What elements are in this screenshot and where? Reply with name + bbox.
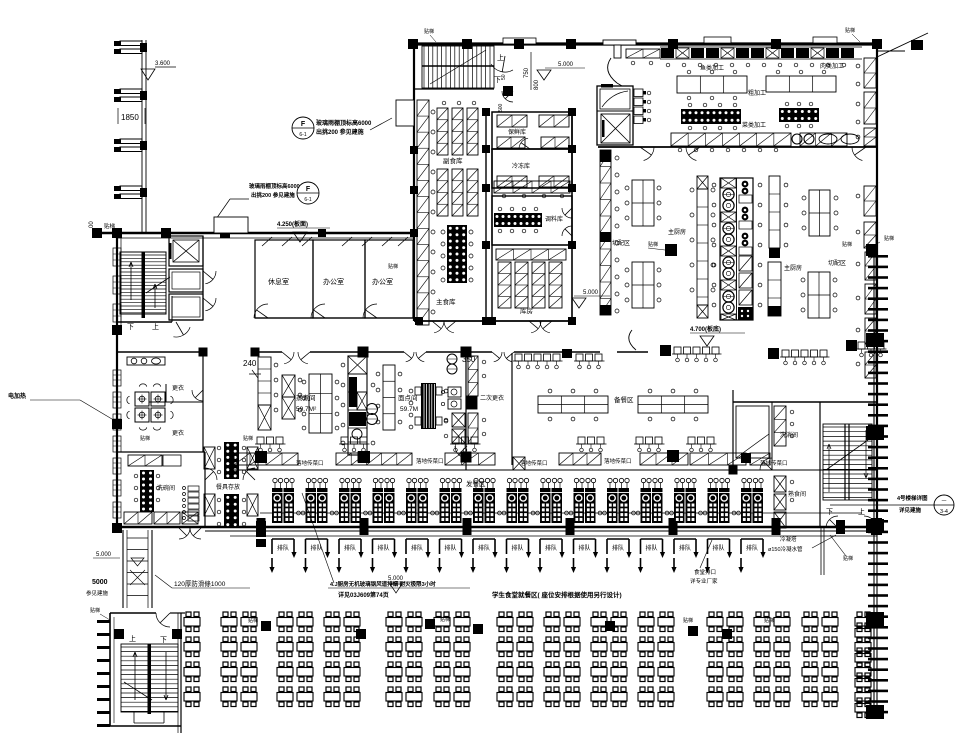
svg-text:贴梯: 贴梯	[424, 28, 434, 35]
svg-text:下: 下	[127, 323, 134, 331]
svg-text:休息室: 休息室	[268, 277, 289, 286]
svg-text:落地传菜口: 落地传菜口	[296, 459, 324, 467]
svg-text:ø150冷凝水管: ø150冷凝水管	[768, 545, 803, 553]
svg-text:主厨房: 主厨房	[668, 228, 686, 236]
svg-text:菜类加工: 菜类加工	[742, 121, 766, 129]
svg-text:59.7M: 59.7M	[400, 406, 418, 413]
svg-text:保鲜库: 保鲜库	[508, 128, 526, 136]
svg-text:主食库: 主食库	[436, 297, 456, 306]
svg-text:备餐区: 备餐区	[614, 395, 634, 404]
svg-text:排队: 排队	[679, 544, 691, 552]
svg-text:排队: 排队	[545, 544, 557, 552]
svg-text:鱼类加工: 鱼类加工	[700, 64, 724, 72]
svg-text:餐具存放: 餐具存放	[216, 483, 240, 491]
svg-text:洗消间: 洗消间	[780, 431, 798, 439]
svg-text:参见建施: 参见建施	[86, 589, 109, 597]
svg-text:排队: 排队	[411, 544, 423, 552]
svg-text:59.7M²: 59.7M²	[296, 406, 317, 413]
svg-text:排队: 排队	[511, 544, 523, 552]
svg-text:350: 350	[462, 355, 476, 364]
svg-text:排队: 排队	[478, 544, 490, 552]
svg-text:4.J厨房无机玻璃钢风道排烟 耐火极限3小时: 4.J厨房无机玻璃钢风道排烟 耐火极限3小时	[330, 580, 436, 588]
svg-text:学生食堂就餐区( 座位安排根据使用另行设计): 学生食堂就餐区( 座位安排根据使用另行设计)	[492, 590, 622, 599]
svg-text:6-1: 6-1	[304, 197, 311, 203]
svg-text:办公室: 办公室	[372, 277, 393, 286]
svg-text:贴梯: 贴梯	[648, 241, 658, 248]
svg-text:3.600: 3.600	[155, 61, 171, 67]
svg-text:下: 下	[494, 76, 501, 84]
svg-text:排队: 排队	[277, 544, 289, 552]
svg-text:落地传菜口: 落地传菜口	[604, 457, 632, 465]
svg-text:贴梯: 贴梯	[140, 435, 150, 442]
svg-text:更衣: 更衣	[172, 429, 184, 437]
svg-text:4.700(板底): 4.700(板底)	[690, 325, 721, 333]
svg-text:切配区: 切配区	[828, 260, 846, 267]
svg-text:240: 240	[243, 359, 257, 368]
svg-text:800: 800	[534, 79, 540, 90]
svg-text:贴梯: 贴梯	[104, 222, 116, 230]
svg-text:落地传菜口: 落地传菜口	[760, 459, 788, 467]
svg-text:1850: 1850	[121, 113, 139, 122]
svg-text:洗碗间: 洗碗间	[157, 484, 175, 492]
svg-text:500: 500	[498, 103, 504, 112]
svg-text:贴梯: 贴梯	[683, 617, 693, 624]
svg-text:贴梯: 贴梯	[440, 616, 450, 623]
svg-text:F: F	[306, 186, 311, 193]
svg-text:一: 一	[941, 499, 946, 505]
svg-text:750: 750	[524, 67, 530, 78]
svg-text:排队: 排队	[578, 544, 590, 552]
svg-text:食堂排口: 食堂排口	[694, 568, 716, 576]
svg-text:贴梯: 贴梯	[843, 555, 853, 562]
svg-text:库房: 库房	[520, 306, 533, 315]
svg-text:贴梯: 贴梯	[388, 263, 398, 270]
svg-text:面点间: 面点间	[398, 394, 418, 402]
svg-text:上: 上	[152, 322, 159, 331]
svg-text:出挑200 参见建施: 出挑200 参见建施	[316, 128, 364, 136]
svg-text:贴梯: 贴梯	[842, 241, 852, 248]
svg-text:5000: 5000	[92, 579, 108, 586]
svg-text:贴梯: 贴梯	[90, 607, 100, 614]
svg-text:上: 上	[858, 507, 865, 516]
svg-text:排队: 排队	[746, 544, 758, 552]
svg-text:4号楼梯详图: 4号楼梯详图	[897, 494, 928, 502]
svg-text:主厨房: 主厨房	[784, 264, 802, 272]
svg-text:粗加工: 粗加工	[748, 89, 766, 97]
svg-text:详专业厂家: 详专业厂家	[690, 577, 718, 585]
svg-text:切配区: 切配区	[612, 240, 630, 247]
svg-text:二次更衣: 二次更衣	[480, 394, 504, 402]
svg-text:贴梯: 贴梯	[884, 235, 894, 242]
svg-text:3-4: 3-4	[940, 509, 948, 515]
svg-text:排队: 排队	[444, 544, 456, 552]
svg-text:贴梯: 贴梯	[248, 617, 258, 624]
svg-text:5.000: 5.000	[388, 576, 404, 582]
svg-text:排队: 排队	[612, 544, 624, 552]
svg-text:5.000: 5.000	[583, 290, 599, 296]
svg-text:贴梯: 贴梯	[845, 27, 855, 34]
svg-text:贴梯: 贴梯	[243, 435, 253, 442]
svg-text:调料库: 调料库	[545, 215, 563, 223]
svg-text:玻璃雨棚顶标高6000: 玻璃雨棚顶标高6000	[316, 119, 372, 127]
svg-text:办公室: 办公室	[323, 277, 344, 286]
svg-text:冷冻库: 冷冻库	[512, 162, 530, 170]
svg-text:120厚防滑條1000: 120厚防滑條1000	[174, 579, 226, 588]
svg-text:排队: 排队	[344, 544, 356, 552]
svg-text:6-1: 6-1	[299, 132, 306, 138]
svg-text:排队: 排队	[645, 544, 657, 552]
svg-text:排队: 排队	[377, 544, 389, 552]
svg-text:落地传菜口: 落地传菜口	[416, 457, 444, 465]
svg-text:详见03J609第74页: 详见03J609第74页	[338, 591, 389, 599]
svg-text:玻璃雨棚顶标高6000: 玻璃雨棚顶标高6000	[249, 182, 300, 190]
svg-text:00: 00	[89, 221, 95, 228]
svg-text:50: 50	[501, 74, 507, 80]
svg-text:F: F	[301, 121, 306, 128]
svg-text:下: 下	[826, 508, 833, 516]
svg-text:4.250(板面): 4.250(板面)	[277, 220, 308, 228]
svg-text:上: 上	[497, 53, 504, 62]
svg-text:熟食间: 熟食间	[788, 490, 806, 498]
svg-text:5.000: 5.000	[558, 62, 574, 68]
svg-text:副食库: 副食库	[443, 156, 463, 165]
svg-text:发餐区: 发餐区	[466, 479, 486, 488]
svg-text:下: 下	[160, 636, 167, 644]
svg-text:出挑200 参见建施: 出挑200 参见建施	[251, 191, 295, 199]
svg-text:上: 上	[129, 634, 136, 643]
svg-text:肉类加工: 肉类加工	[820, 62, 844, 70]
svg-text:排队: 排队	[712, 544, 724, 552]
svg-text:电加热: 电加热	[8, 392, 26, 400]
svg-text:冷凝塔: 冷凝塔	[780, 535, 797, 543]
svg-text:详见建施: 详见建施	[899, 506, 922, 514]
svg-text:落地传菜口: 落地传菜口	[520, 459, 548, 467]
svg-text:5.000: 5.000	[96, 552, 112, 558]
svg-text:贴梯: 贴梯	[764, 617, 774, 624]
svg-text:更衣: 更衣	[172, 384, 184, 392]
